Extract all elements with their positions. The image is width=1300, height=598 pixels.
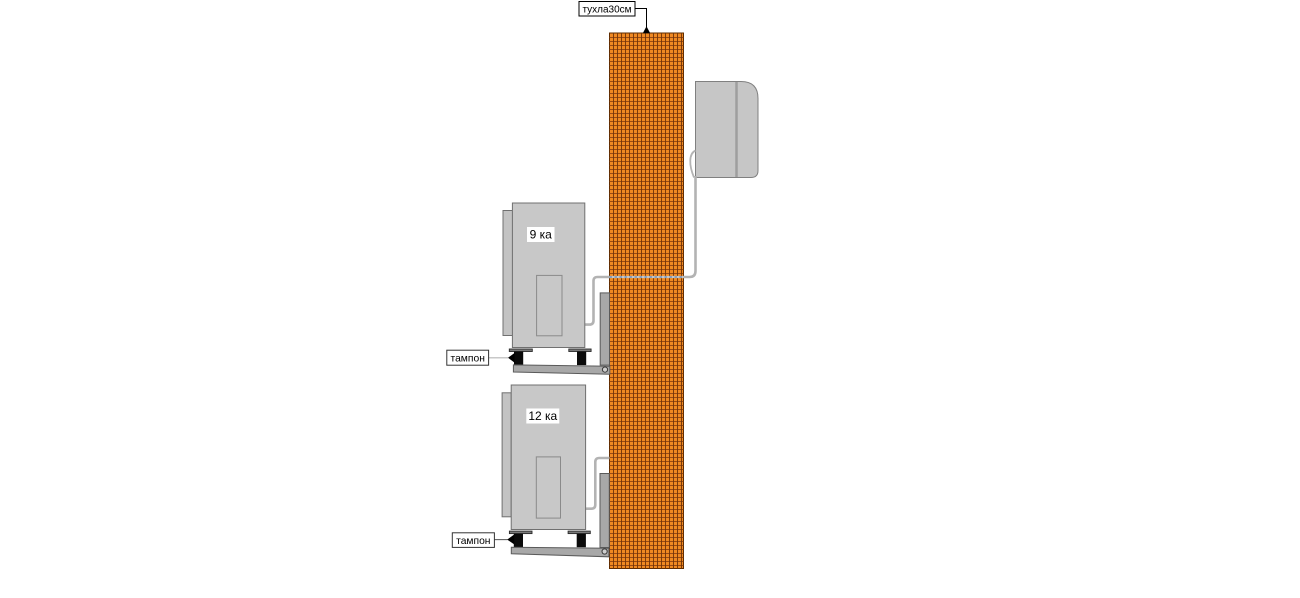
- svg-text:тампон: тампон: [456, 536, 490, 547]
- svg-text:тампон: тампон: [450, 353, 484, 364]
- svg-text:12 ка: 12 ка: [528, 409, 557, 423]
- svg-text:тухла30см: тухла30см: [582, 4, 631, 15]
- svg-text:9 ка: 9 ка: [530, 228, 553, 242]
